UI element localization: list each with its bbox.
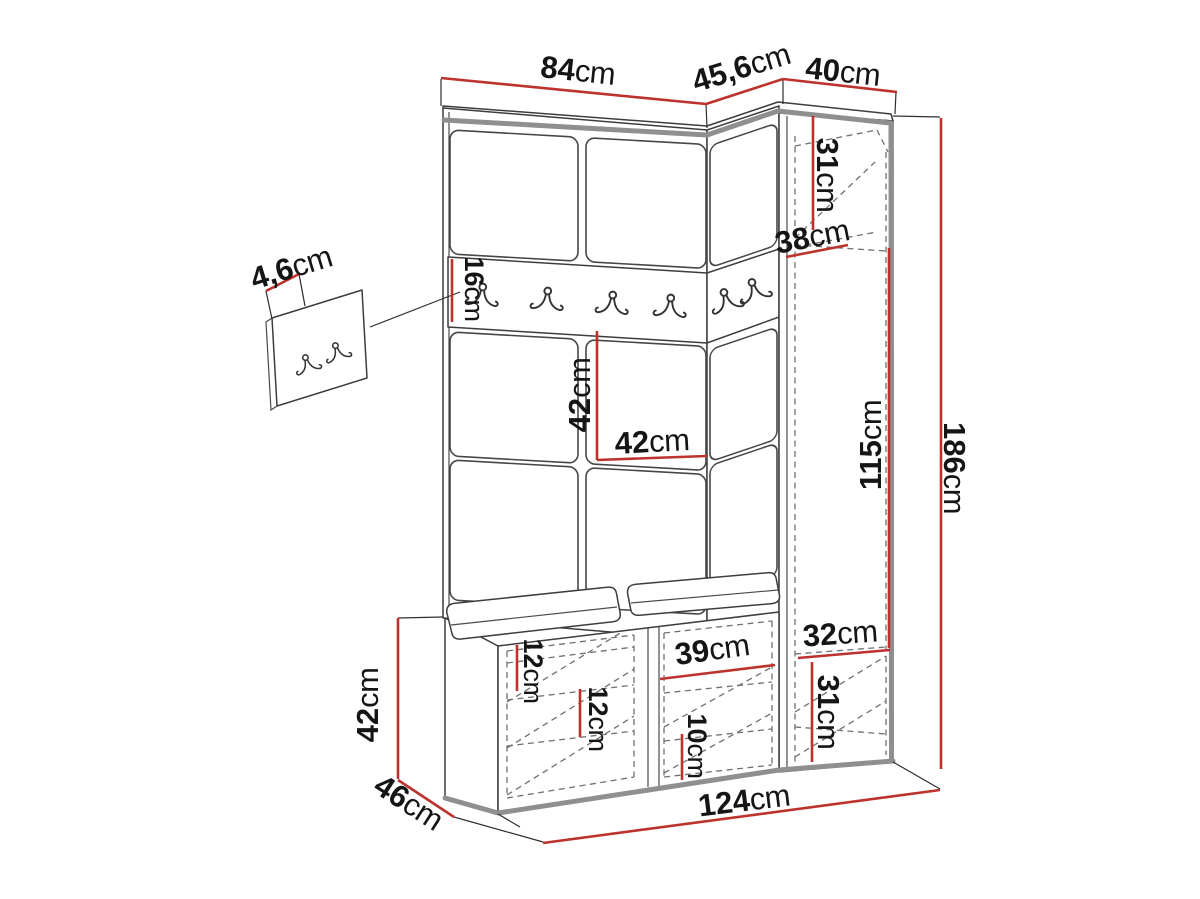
wall-hook-panel bbox=[266, 290, 460, 410]
dim-label-main-top-width: 84cm bbox=[539, 49, 617, 92]
furniture-dimension-diagram: 84cm 45,6cm 40cm 4,6cm 16cm 42cm 42cm 31… bbox=[0, 0, 1200, 899]
dim-label-bench-shelf-spacing: 12cm bbox=[583, 686, 613, 751]
dim-label-bench-depth: 46cm bbox=[368, 767, 450, 837]
diagram-canvas: 84cm 45,6cm 40cm 4,6cm 16cm 42cm 42cm 31… bbox=[0, 0, 1200, 899]
dim-label-wardrobe-lower-shelf-width: 32cm bbox=[801, 613, 878, 653]
wall-panels-corner bbox=[710, 123, 777, 598]
hook-panel-face bbox=[272, 290, 367, 406]
dim-label-rail-height: 16cm bbox=[459, 256, 489, 321]
dim-label-bench-top-offset: 12cm bbox=[518, 638, 548, 703]
dim-label-panel-height: 42cm bbox=[562, 358, 597, 433]
dim-label-wardrobe-hanging-height: 115cm bbox=[853, 400, 888, 490]
wall-panel bbox=[710, 123, 777, 268]
wall-panel bbox=[450, 332, 578, 463]
dim-label-corner-top-width: 45,6cm bbox=[688, 36, 795, 99]
wall-panel bbox=[710, 327, 777, 462]
dim-label-wardrobe-lower-shelf-height: 31cm bbox=[812, 675, 847, 750]
dim-label-bench-height: 42cm bbox=[350, 668, 385, 743]
bench-side-face bbox=[445, 618, 498, 813]
dim-label-total-height: 186cm bbox=[938, 422, 973, 514]
dim-label-wall-panel-thickness: 4,6cm bbox=[246, 238, 336, 296]
dim-label-panel-width: 42cm bbox=[614, 422, 691, 461]
wall-panel bbox=[450, 130, 578, 261]
right-edge-shadow bbox=[891, 123, 892, 760]
dim-label-wardrobe-top-width: 40cm bbox=[804, 50, 882, 93]
wall-panel bbox=[450, 460, 578, 607]
dim-label-wardrobe-top-shelf-height: 31cm bbox=[811, 138, 846, 213]
dim-label-total-width: 124cm bbox=[696, 777, 792, 823]
dim-label-bench-lower-shelf-height: 10cm bbox=[682, 713, 712, 778]
wall-panel bbox=[586, 138, 706, 269]
